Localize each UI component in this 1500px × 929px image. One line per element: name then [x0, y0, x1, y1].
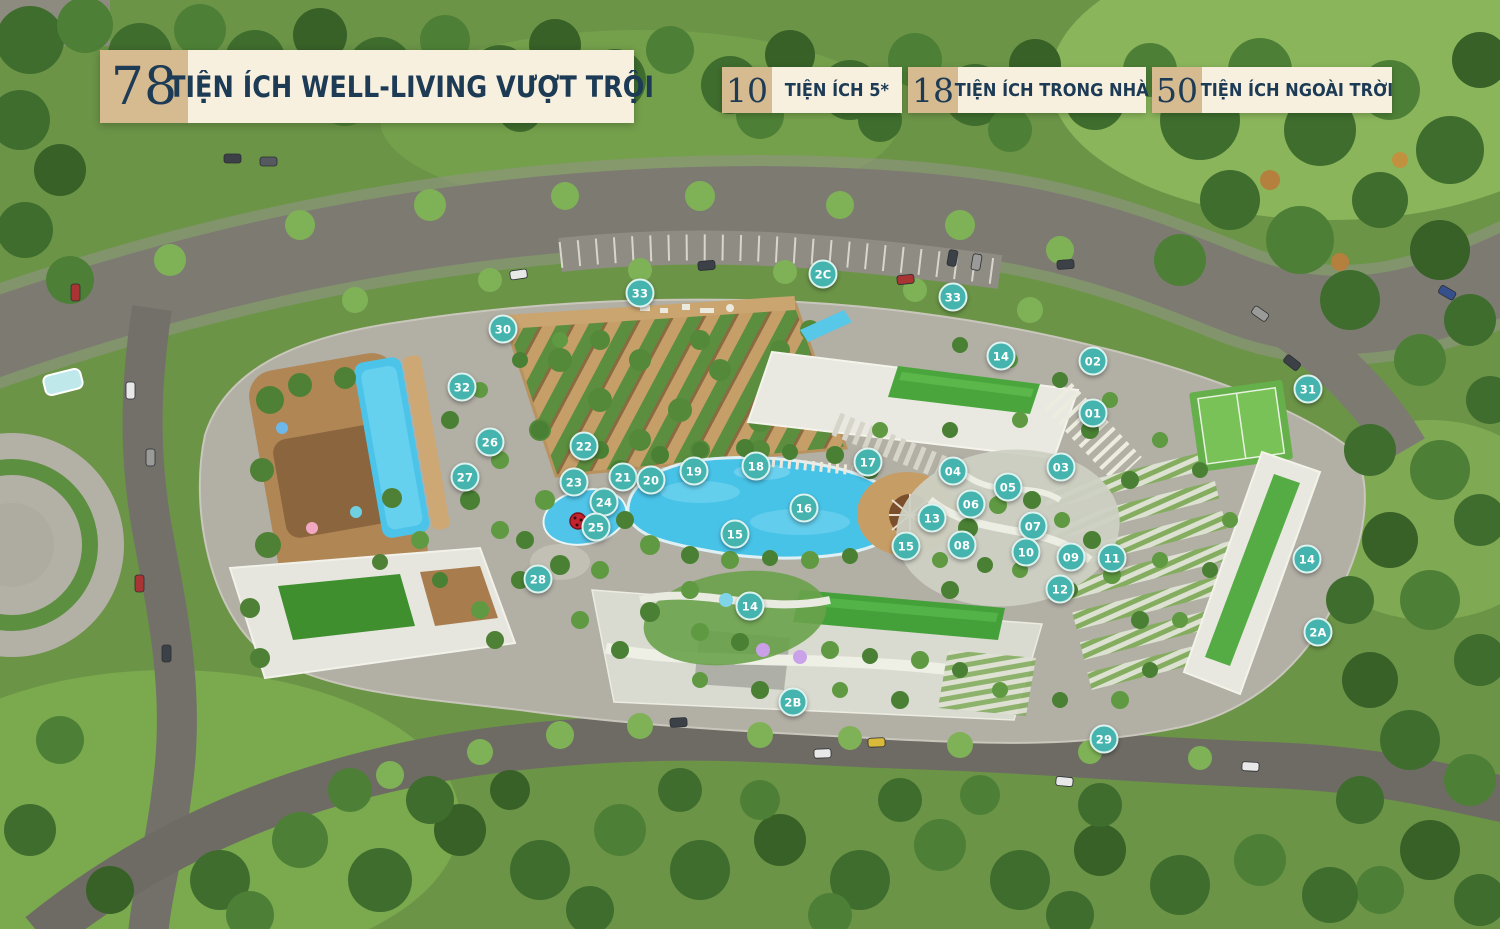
- stat-outdoor-label: TIỆN ÍCH NGOÀI TRỜI: [1201, 80, 1394, 101]
- amenity-marker-05[interactable]: 05: [994, 473, 1023, 502]
- amenity-marker-15[interactable]: 15: [721, 520, 750, 549]
- amenity-marker-19[interactable]: 19: [680, 457, 709, 486]
- amenity-marker-07[interactable]: 07: [1019, 512, 1048, 541]
- headline-title: TIỆN ÍCH WELL-LIVING VƯỢT TRỘI: [168, 70, 654, 104]
- amenity-marker-23[interactable]: 23: [560, 468, 589, 497]
- amenity-marker-04[interactable]: 04: [939, 457, 968, 486]
- amenity-marker-12[interactable]: 12: [1046, 575, 1075, 604]
- amenity-marker-10[interactable]: 10: [1012, 538, 1041, 567]
- amenity-marker-01[interactable]: 01: [1079, 399, 1108, 428]
- amenity-marker-08[interactable]: 08: [948, 531, 977, 560]
- amenity-marker-29[interactable]: 29: [1090, 725, 1119, 754]
- amenity-marker-27[interactable]: 27: [451, 463, 480, 492]
- amenity-marker-03[interactable]: 03: [1047, 453, 1076, 482]
- amenity-marker-2a[interactable]: 2A: [1304, 618, 1333, 647]
- amenity-marker-25[interactable]: 25: [582, 513, 611, 542]
- amenity-marker-18[interactable]: 18: [742, 452, 771, 481]
- amenity-marker-15[interactable]: 15: [892, 532, 921, 561]
- amenity-marker-17[interactable]: 17: [854, 448, 883, 477]
- amenity-marker-33[interactable]: 33: [626, 279, 655, 308]
- amenity-marker-2c[interactable]: 2C: [809, 260, 838, 289]
- amenity-marker-06[interactable]: 06: [957, 490, 986, 519]
- amenity-marker-26[interactable]: 26: [476, 428, 505, 457]
- amenity-marker-2b[interactable]: 2B: [779, 688, 808, 717]
- stat-5star-label: TIỆN ÍCH 5*: [785, 80, 889, 101]
- stat-5star-count: 10: [722, 67, 772, 113]
- stat-outdoor-count: 50: [1152, 67, 1202, 113]
- stat-badge-outdoor: 50 TIỆN ÍCH NGOÀI TRỜI: [1152, 67, 1392, 113]
- total-amenities-badge: 78 TIỆN ÍCH WELL-LIVING VƯỢT TRỘI: [100, 50, 634, 123]
- amenity-marker-20[interactable]: 20: [637, 466, 666, 495]
- marker-layer: 332C333014023231012622171803190421272023…: [0, 0, 1500, 929]
- amenity-marker-31[interactable]: 31: [1294, 375, 1323, 404]
- amenity-marker-30[interactable]: 30: [489, 315, 518, 344]
- stat-badge-5star: 10 TIỆN ÍCH 5*: [722, 67, 902, 113]
- amenity-marker-28[interactable]: 28: [524, 565, 553, 594]
- amenity-marker-09[interactable]: 09: [1057, 543, 1086, 572]
- stat-indoor-count: 18: [908, 67, 958, 113]
- amenity-marker-22[interactable]: 22: [570, 432, 599, 461]
- stat-indoor-label: TIỆN ÍCH TRONG NHÀ: [955, 80, 1149, 101]
- amenity-marker-14[interactable]: 14: [736, 592, 765, 621]
- amenity-marker-33[interactable]: 33: [939, 283, 968, 312]
- headline-box: TIỆN ÍCH WELL-LIVING VƯỢT TRỘI: [188, 50, 634, 123]
- amenity-marker-32[interactable]: 32: [448, 373, 477, 402]
- stat-badge-indoor: 18 TIỆN ÍCH TRONG NHÀ: [908, 67, 1146, 113]
- masterplan-canvas: 332C333014023231012622171803190421272023…: [0, 0, 1500, 929]
- amenity-marker-11[interactable]: 11: [1098, 544, 1127, 573]
- amenity-marker-14[interactable]: 14: [987, 342, 1016, 371]
- amenity-marker-13[interactable]: 13: [918, 504, 947, 533]
- amenity-marker-21[interactable]: 21: [609, 463, 638, 492]
- amenity-marker-16[interactable]: 16: [790, 494, 819, 523]
- amenity-marker-14[interactable]: 14: [1293, 545, 1322, 574]
- amenity-marker-02[interactable]: 02: [1079, 347, 1108, 376]
